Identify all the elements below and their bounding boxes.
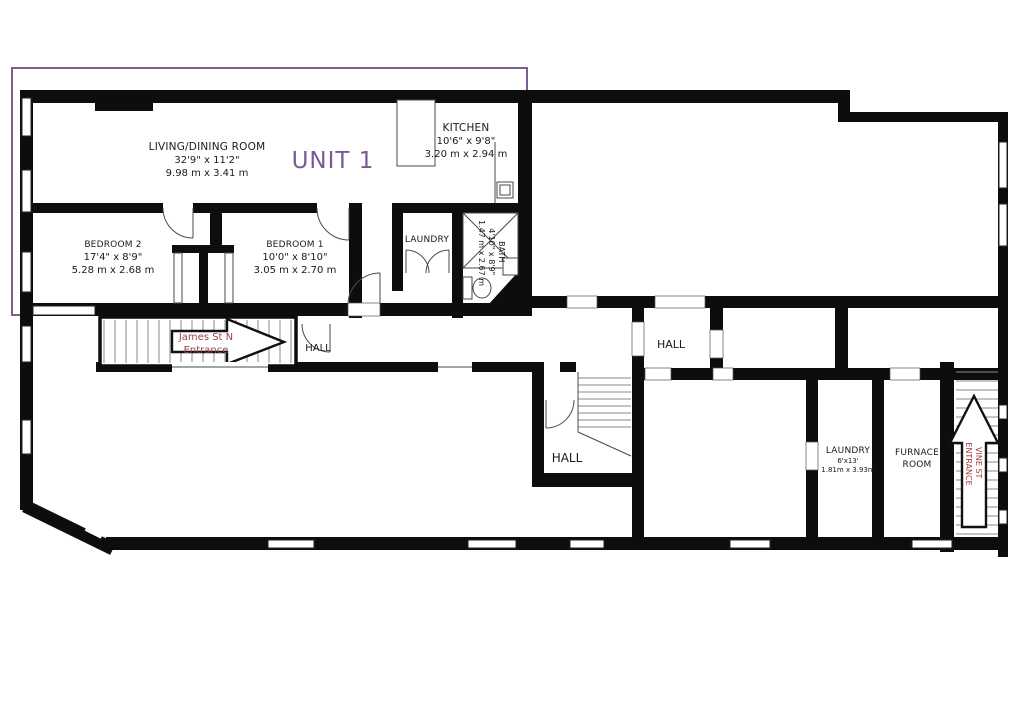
wall-laundry-bath-top (392, 203, 522, 213)
window-bottom-1 (268, 540, 314, 548)
wall-laundry-furnace-divider (872, 380, 884, 537)
hall-room-gap (710, 330, 723, 358)
wall-closet-top (172, 245, 234, 253)
hall-mid-label: HALL (552, 451, 583, 465)
furnace-room-line1: FURNACE (895, 448, 939, 458)
window-right-1 (999, 142, 1007, 188)
wall-bedroom1-right (349, 203, 362, 318)
living-dining-metric: 9.98 m x 3.41 m (166, 168, 249, 179)
kitchen-sink (497, 182, 513, 198)
window-bottom-3 (570, 540, 604, 548)
james-entrance-line2: Entrance (184, 345, 229, 356)
vine-entrance-line2: ENTRANCE (964, 442, 973, 485)
window-right-2 (999, 204, 1007, 246)
unit1-boundary-outline (12, 68, 527, 315)
wall-bigroom-left (632, 380, 644, 537)
building-laundry-imperial: 6'x13' (837, 457, 858, 465)
floor-plan: UNIT 1 LIVING/DINING ROOM 32'9" x 11'2" … (0, 0, 1024, 723)
hall-center-bottom-gap (645, 368, 671, 380)
wall-midblock-bottom (532, 473, 644, 487)
wall-topright-bottom (532, 296, 1008, 308)
vine-entrance-label: VINE ST ENTRANCE (964, 442, 983, 485)
bedroom2-metric: 5.28 m x 2.68 m (72, 265, 155, 276)
window-right-4 (999, 458, 1007, 472)
window-left-5 (22, 420, 31, 454)
closet-door-bedroom2 (174, 253, 182, 303)
hall-center-label: HALL (657, 338, 686, 351)
midblock-room-door (546, 400, 574, 428)
middle-stairs-rail (578, 432, 631, 456)
topright-room-door-gap (567, 296, 597, 308)
kitchen-name: KITCHEN (443, 122, 490, 134)
kitchen-metric: 3.20 m x 2.94 m (425, 149, 508, 160)
bedroom2-name: BEDROOM 2 (84, 240, 141, 250)
window-right-3 (999, 405, 1007, 419)
wall-bottom-outer (106, 537, 1008, 550)
wall-unit-top-bump (95, 103, 153, 111)
window-bottom-4 (730, 540, 770, 548)
wall-topright-top (530, 90, 848, 103)
wall-bath-left (452, 213, 463, 318)
stairs-vine-st (950, 372, 998, 534)
laundry-door-left (406, 250, 429, 273)
vine-entrance-line1: VINE ST (974, 447, 983, 478)
bath-name: BATH (497, 241, 506, 262)
window-right-5 (999, 510, 1007, 524)
bedroom1-metric: 3.05 m x 2.70 m (254, 265, 337, 276)
window-bottom-2 (468, 540, 516, 548)
bath-metric: 1.47 m x 2.67 m (477, 220, 486, 286)
middle-stairs-treads (578, 378, 631, 427)
living-dining-name: LIVING/DINING ROOM (149, 141, 266, 153)
building-laundry-name: LAUNDRY (826, 446, 871, 456)
band-door-gap (713, 368, 733, 380)
kitchen-imperial: 10'6" x 9'8" (437, 136, 496, 147)
window-left-3 (22, 252, 31, 292)
unit1-entry-gap (348, 303, 380, 316)
window-bedroom2-bottom (33, 306, 95, 315)
wall-topright-lower (845, 112, 1008, 122)
furnace-room-line2: ROOM (903, 460, 932, 470)
wall-closet-divider (199, 253, 208, 303)
closet-door-bedroom1 (225, 253, 233, 303)
stairs-middle (578, 372, 631, 456)
window-left-2 (22, 170, 31, 212)
furnace-door-gap (890, 368, 920, 380)
wall-bedroom2-top (33, 203, 163, 213)
laundry-door-right (426, 250, 449, 273)
bedroom1-name: BEDROOM 1 (266, 240, 323, 250)
living-dining-imperial: 32'9" x 11'2" (174, 155, 239, 166)
bath-toilet-tank (463, 277, 472, 299)
hall-center-top-gap (655, 296, 705, 308)
wall-bedroom2-top-right (193, 203, 210, 213)
wall-unit-top (20, 90, 530, 103)
bath-imperial: 4'10" x 8'9" (487, 228, 496, 275)
floor-plan-page: UNIT 1 LIVING/DINING ROOM 32'9" x 11'2" … (0, 0, 1024, 723)
james-entrance-line1: James St N (178, 332, 233, 343)
unit1-label: UNIT 1 (292, 148, 375, 174)
window-left-4 (22, 326, 31, 362)
wall-midblock-left (532, 362, 544, 487)
window-bottom-5 (912, 540, 952, 548)
bedroom2-imperial: 17'4" x 8'9" (84, 252, 143, 263)
bedroom1-door-gap (317, 203, 349, 213)
corridor-hall-gap (632, 322, 644, 356)
wall-midblock-pier (560, 362, 576, 372)
building-laundry-metric: 1.81m x 3.93m (821, 466, 875, 474)
window-left-1 (22, 98, 31, 136)
wall-vine-stairs-left (940, 362, 954, 552)
bedroom2-door-gap (163, 203, 193, 213)
laundry2-door-gap (806, 442, 818, 470)
unit1-laundry-name: LAUNDRY (405, 235, 450, 245)
wall-corridor-bottom-3 (472, 362, 544, 372)
wall-corner-diagonal (25, 506, 113, 549)
hall-entry-label: HALL (305, 343, 331, 354)
bedroom1-imperial: 10'0" x 8'10" (262, 252, 327, 263)
wall-bedroom1-top (222, 203, 317, 213)
wall-laundry-left (392, 213, 403, 291)
